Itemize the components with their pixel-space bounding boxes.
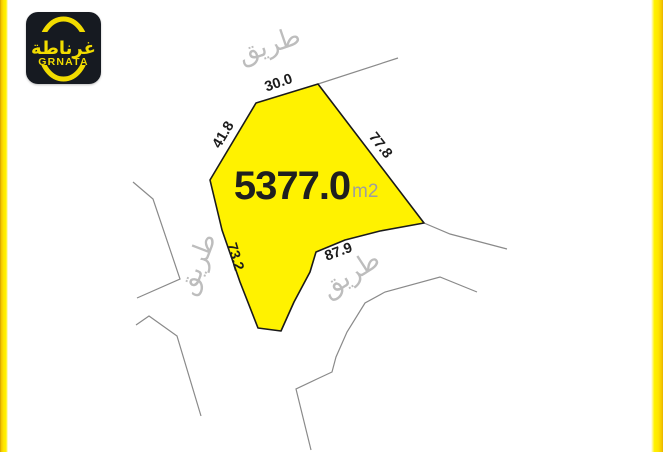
parcel-area-unit: m2 bbox=[352, 181, 378, 202]
plot-listing-image: غرناطة GRNATA 5377.0 m2 30.0 41.8 77.8 7… bbox=[0, 0, 668, 452]
dimension-label-top: 30.0 bbox=[263, 71, 295, 95]
road-boundary-upper-left bbox=[133, 182, 180, 298]
road-line-top-right bbox=[318, 58, 398, 84]
road-label-top: طريق bbox=[234, 21, 304, 70]
road-label-left: طريق bbox=[172, 229, 223, 299]
parcel-area-value: 5377.0 bbox=[234, 164, 350, 208]
plot-map-svg: 5377.0 m2 30.0 41.8 77.8 73.2 87.9 طريق … bbox=[0, 0, 668, 452]
road-line-right bbox=[424, 223, 507, 249]
road-boundary-bottom bbox=[296, 277, 477, 450]
road-boundary-lower-left bbox=[136, 316, 201, 416]
